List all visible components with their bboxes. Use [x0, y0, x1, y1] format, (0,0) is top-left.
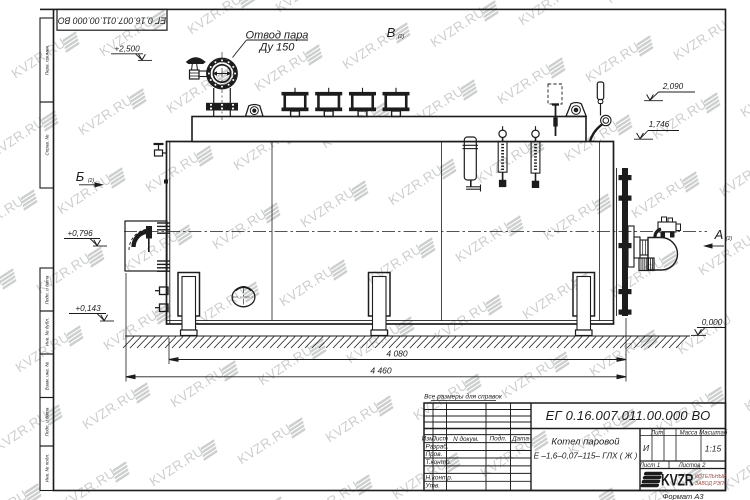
svg-text:Разраб.: Разраб. — [426, 443, 449, 451]
svg-text:KVZR.RU: KVZR.RU — [13, 329, 73, 375]
svg-text:KVZR.RU: KVZR.RU — [273, 0, 333, 15]
svg-text:Формат А3: Формат А3 — [662, 492, 704, 500]
svg-text:KVZR.RU: KVZR.RU — [386, 162, 446, 208]
svg-text:ЗАВОД РЭП: ЗАВОД РЭП — [695, 481, 724, 487]
svg-text:+0,796: +0,796 — [67, 229, 93, 238]
svg-text:KVZR.RU: KVZR.RU — [499, 355, 559, 401]
svg-text:Утв.: Утв. — [425, 482, 441, 489]
svg-text:(2): (2) — [88, 178, 94, 184]
svg-text:KVZR.RU: KVZR.RU — [80, 386, 140, 432]
svg-text:KVZR.RU: KVZR.RU — [76, 92, 136, 138]
svg-text:KVZR.RU: KVZR.RU — [9, 35, 69, 81]
svg-text:KVZR.RU: KVZR.RU — [604, 0, 664, 6]
svg-text:KVZR.RU: KVZR.RU — [671, 17, 731, 63]
svg-text:KVZR.RU: KVZR.RU — [302, 478, 362, 500]
svg-text:Ду 150: Ду 150 — [258, 42, 296, 54]
svg-text:Лит.: Лит. — [650, 431, 665, 437]
svg-text:KVZR.RU: KVZR.RU — [185, 0, 245, 37]
svg-text:Дата: Дата — [511, 436, 529, 443]
svg-text:KVZR.RU: KVZR.RU — [738, 74, 750, 120]
svg-text:KVZR.RU: KVZR.RU — [59, 465, 119, 500]
svg-text:KVZR.RU: KVZR.RU — [717, 153, 750, 199]
svg-text:Е –1,6–0,07–115– ГЛХ ( Ж ): Е –1,6–0,07–115– ГЛХ ( Ж ) — [534, 452, 638, 461]
svg-text:KVZR.RU: KVZR.RU — [101, 307, 161, 353]
svg-text:KVZR.RU: KVZR.RU — [587, 333, 647, 379]
svg-text:KVZR.RU: KVZR.RU — [55, 171, 115, 217]
svg-text:KVZR.RU: KVZR.RU — [256, 342, 316, 388]
svg-text:KVZR.RU: KVZR.RU — [252, 48, 312, 94]
svg-text:KVZR.RU: KVZR.RU — [210, 206, 270, 252]
svg-text:Перв. примен.: Перв. примен. — [45, 45, 50, 76]
svg-text:Масса: Масса — [680, 431, 698, 437]
svg-text:1,746: 1,746 — [649, 120, 670, 129]
svg-text:4 080: 4 080 — [386, 349, 408, 359]
svg-text:ЕГ 0.16.007.011.00.000 ВО: ЕГ 0.16.007.011.00.000 ВО — [546, 408, 711, 423]
svg-text:KVZR: KVZR — [661, 472, 694, 490]
svg-text:KVZR.RU: KVZR.RU — [143, 149, 203, 195]
svg-text:Масштаб: Масштаб — [699, 431, 728, 437]
svg-text:Справ. №: Справ. № — [45, 135, 50, 156]
svg-text:KVZR.RU: KVZR.RU — [30, 0, 90, 2]
svg-text:Взам. инв. №: Взам. инв. № — [45, 362, 50, 390]
svg-text:N докум.: N докум. — [453, 435, 479, 443]
svg-text:4 460: 4 460 — [370, 366, 392, 376]
svg-text:И: И — [643, 443, 650, 453]
svg-text:Б: Б — [76, 169, 85, 184]
svg-text:KVZR.RU: KVZR.RU — [629, 175, 689, 221]
svg-text:KVZR.RU: KVZR.RU — [0, 193, 26, 239]
svg-text:KVZR.RU: KVZR.RU — [0, 0, 1, 24]
svg-text:KVZR.RU: KVZR.RU — [516, 0, 576, 28]
svg-text:KVZR.RU: KVZR.RU — [34, 250, 94, 296]
svg-text:Листов 2: Листов 2 — [678, 463, 707, 469]
svg-text:Подп.: Подп. — [489, 435, 506, 443]
svg-text:Лист 1: Лист 1 — [639, 463, 660, 469]
svg-text:Котел паровой: Котел паровой — [551, 437, 620, 448]
svg-text:KVZR.RU: KVZR.RU — [541, 197, 601, 243]
svg-text:KVZR.RU: KVZR.RU — [0, 487, 30, 500]
svg-text:КОТЕЛЬНЫЙ: КОТЕЛЬНЫЙ — [695, 472, 727, 480]
svg-text:KVZR.RU: KVZR.RU — [742, 368, 750, 414]
svg-text:Подп. и дата: Подп. и дата — [45, 275, 50, 304]
svg-text:0,000: 0,000 — [702, 318, 723, 327]
svg-text:2,090: 2,090 — [662, 82, 684, 91]
svg-text:Т.контр.: Т.контр. — [426, 459, 452, 466]
svg-text:1:15: 1:15 — [705, 444, 722, 454]
svg-text:Все размеры для справок: Все размеры для справок — [424, 393, 503, 401]
svg-text:ЕГ 0.16.007.011.00.000 ВО: ЕГ 0.16.007.011.00.000 ВО — [58, 15, 166, 25]
svg-text:Лист: Лист — [430, 436, 448, 443]
svg-text:KVZR.RU: KVZR.RU — [520, 276, 580, 322]
svg-text:KVZR.RU: KVZR.RU — [277, 263, 337, 309]
svg-text:А: А — [714, 227, 724, 242]
svg-text:Инв. № дубл.: Инв. № дубл. — [45, 318, 50, 346]
svg-text:(2): (2) — [726, 236, 732, 242]
svg-text:KVZR.RU: KVZR.RU — [168, 364, 228, 410]
svg-text:(2): (2) — [398, 34, 404, 40]
svg-text:KVZR.RU: KVZR.RU — [453, 219, 513, 265]
svg-text:Пров.: Пров. — [426, 451, 443, 458]
svg-text:KVZR.RU: KVZR.RU — [495, 61, 555, 107]
svg-text:KVZR.RU: KVZR.RU — [147, 443, 207, 489]
svg-text:KVZR.RU: KVZR.RU — [298, 184, 358, 230]
svg-text:KVZR.RU: KVZR.RU — [235, 421, 295, 467]
svg-text:+2,500: +2,500 — [114, 45, 140, 54]
svg-text:Н.контр.: Н.контр. — [426, 474, 453, 481]
svg-text:KVZR.RU: KVZR.RU — [428, 4, 488, 50]
svg-text:KVZR.RU: KVZR.RU — [583, 39, 643, 85]
svg-text:В: В — [387, 25, 396, 40]
svg-text:Подп. и дата: Подп. и дата — [45, 407, 50, 436]
svg-text:KVZR.RU: KVZR.RU — [323, 399, 383, 445]
svg-text:+0,143: +0,143 — [75, 304, 101, 313]
svg-text:Инв. № подл.: Инв. № подл. — [45, 454, 50, 483]
